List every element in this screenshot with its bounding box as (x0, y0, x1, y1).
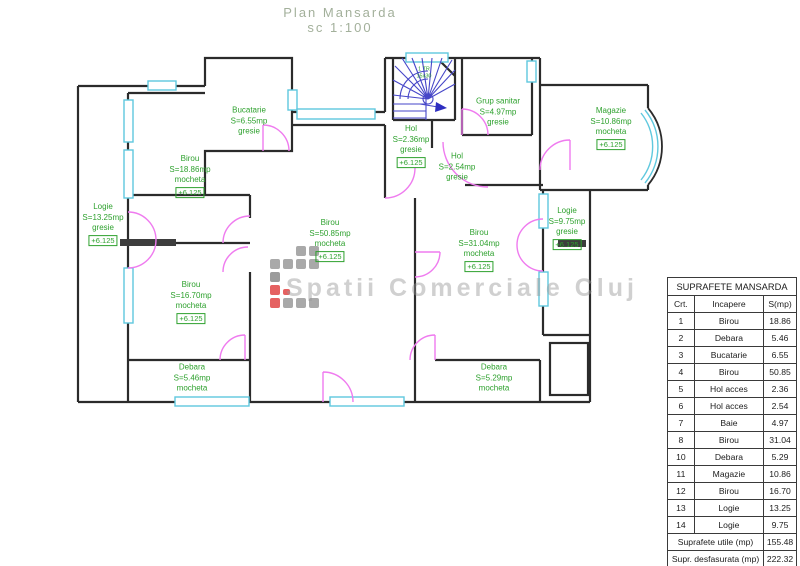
watermark-text: Spatii Comerciale Cluj (286, 274, 638, 303)
table-footer-desfasurata: Supr. desfasurata (mp) 222.32 (668, 551, 797, 566)
floor-plan-sheet: Spatii Comerciale Cluj Plan Mansarda sc … (0, 0, 800, 566)
stairs-label: 1 TR 15x30 (417, 66, 432, 79)
col-header-incapere: Incapere (694, 296, 763, 313)
plan-scale: sc 1:100 (240, 21, 440, 36)
table-row: 5Hol acces2.36 (668, 381, 797, 398)
table-footer-utile: Suprafete utile (mp) 155.48 (668, 534, 797, 551)
areas-table: SUPRAFETE MANSARDA Crt. Incapere S(mp) 1… (667, 277, 797, 566)
col-header-crt: Crt. (668, 296, 695, 313)
room-label-debara-529: DebaraS=5.29mpmocheta (476, 363, 513, 394)
room-label-birou-5085: BirouS=50.85mpmocheta+6.125 (309, 218, 350, 262)
table-row: 10Debara5.29 (668, 449, 797, 466)
room-label-bucatarie: BucatarieS=6.55mpgresie (231, 106, 268, 137)
room-label-logie-left: LogieS=13.25mpgresie+6.125 (82, 202, 123, 246)
table-row: 11Magazie10.86 (668, 466, 797, 483)
room-label-hol-254: HolS=2.54mpgresie (439, 152, 476, 183)
room-label-birou-1886: BirouS=18.86mpmocheta+6.125 (169, 154, 210, 198)
room-label-birou-1670: BirouS=16.70mpmocheta+6.125 (170, 280, 211, 324)
table-row: 6Hol acces2.54 (668, 398, 797, 415)
plan-title: Plan Mansarda sc 1:100 (240, 6, 440, 36)
table-row: 8Birou31.04 (668, 432, 797, 449)
table-row: 7Baie4.97 (668, 415, 797, 432)
plan-title-line1: Plan Mansarda (240, 6, 440, 21)
table-row: 14Logie9.75 (668, 517, 797, 534)
room-label-magazie: MagazieS=10.86mpmocheta+6.125 (590, 106, 631, 150)
table-row: 4Birou50.85 (668, 364, 797, 381)
table-row: 2Debara5.46 (668, 330, 797, 347)
table-row: 3Bucatarie6.55 (668, 347, 797, 364)
room-label-logie-right: LogieS=9.75mpgresie+6.125 (549, 206, 586, 250)
col-header-smp: S(mp) (764, 296, 797, 313)
table-header-row: Crt. Incapere S(mp) (668, 296, 797, 313)
table-row: 13Logie13.25 (668, 500, 797, 517)
table-title: SUPRAFETE MANSARDA (668, 278, 797, 296)
room-label-grup-sanitar: Grup sanitarS=4.97mpgresie (476, 97, 520, 128)
room-label-birou-3104: BirouS=31.04mpmocheta+6.125 (458, 228, 499, 272)
table-row: 1Birou18.86 (668, 313, 797, 330)
room-label-hol-236: HolS=2.36mpgresie+6.125 (393, 124, 430, 168)
room-label-debara-546: DebaraS=5.46mpmocheta (174, 363, 211, 394)
table-row: 12Birou16.70 (668, 483, 797, 500)
